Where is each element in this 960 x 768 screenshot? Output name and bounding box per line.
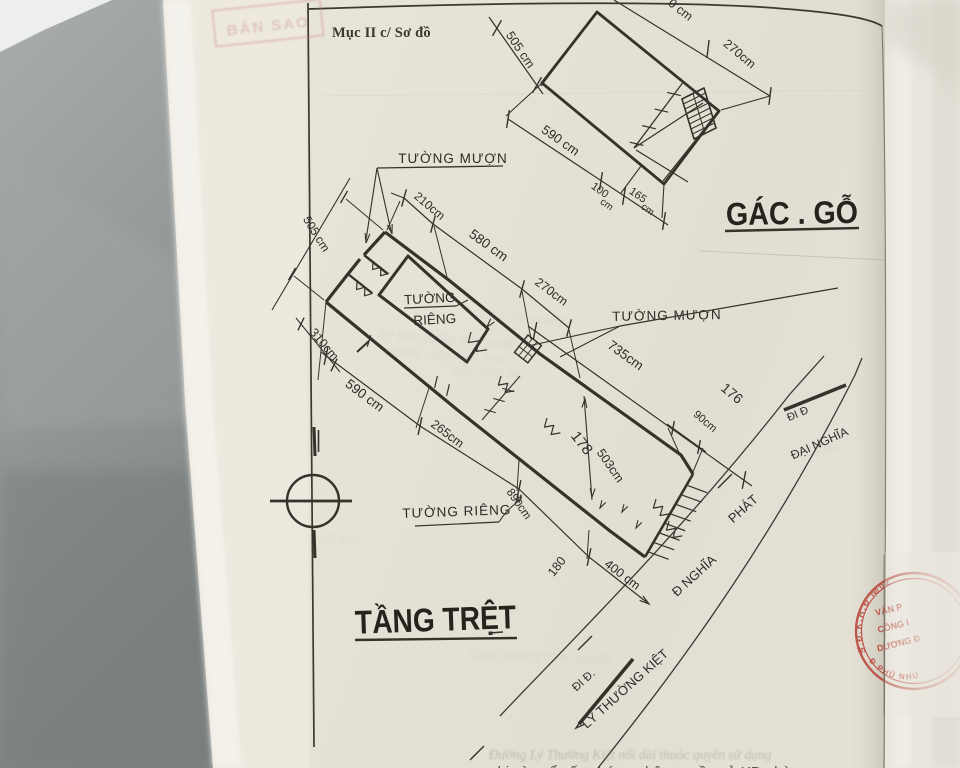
svg-text:Mục II c/ Sơ đồ: Mục II c/ Sơ đồ: [332, 25, 431, 41]
svg-text:TƯỜNG: TƯỜNG: [404, 290, 456, 308]
svg-text:RIÊNG: RIÊNG: [413, 311, 456, 328]
svg-text:TƯỜNG MƯỢN: TƯỜNG MƯỢN: [612, 307, 722, 324]
svg-text:GÁC . GỖ: GÁC . GỖ: [726, 194, 859, 232]
svg-text:★: ★: [856, 645, 863, 654]
svg-text:sở hữu: sở hữu: [321, 531, 360, 546]
svg-text:TƯỜNG MƯỢN: TƯỜNG MƯỢN: [398, 151, 507, 166]
svg-text:TẦNG TRỆT: TẦNG TRỆT: [354, 598, 516, 641]
svg-text:Đường Lý Thường Kiệt nối dài t: Đường Lý Thường Kiệt nối dài thuộc quyền…: [488, 747, 772, 762]
svg-text:ghi vào sổ cấp chứng nhận quyề: ghi vào sổ cấp chứng nhận quyền sở XD nh…: [489, 764, 791, 768]
